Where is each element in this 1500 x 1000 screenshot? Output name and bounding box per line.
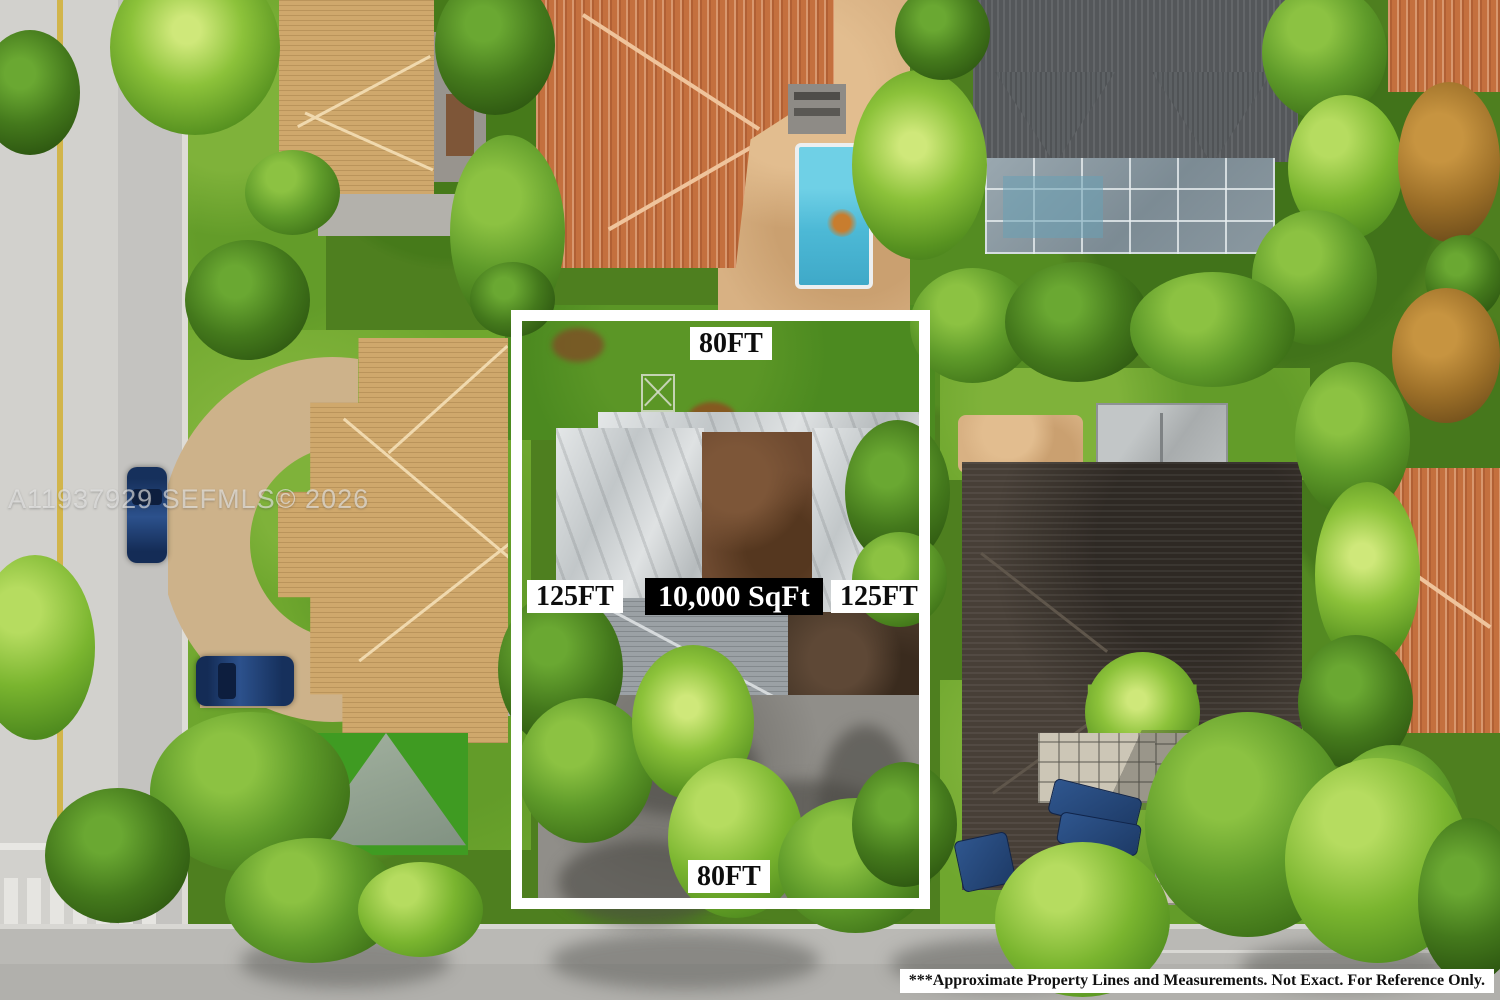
tree [45,788,190,923]
house-corner-roof [1388,0,1500,92]
boundary-label-bottom: 80FT [688,860,770,893]
boundary-label-right: 125FT [831,580,927,613]
entry-canopy [788,84,846,134]
autumn-tree [1392,288,1500,423]
crosswalk-stripe [4,878,18,926]
tree-shadow [550,932,820,990]
parked-car-driveway [196,656,294,706]
parked-car-street [127,467,167,563]
pool-screen-enclosure [985,158,1275,254]
canopy-slot [794,92,840,100]
boundary-label-top: 80FT [690,327,772,360]
tree [358,862,483,957]
palm-tree [852,70,987,260]
pool-plant [827,209,857,237]
car-windshield [218,663,236,699]
canopy-slot [794,108,840,116]
tree [1130,272,1295,387]
aerial-photo-stage: 80FT 80FT 125FT 125FT 10,000 SqFt A11937… [0,0,1500,1000]
boundary-label-left: 125FT [527,580,623,613]
enclosed-pool-water [1003,176,1103,238]
shrub [185,240,310,360]
roof-ridge [980,552,1108,653]
roof-ridge [388,345,509,454]
crosswalk-stripe [27,878,41,926]
lot-area-label: 10,000 SqFt [645,578,823,615]
disclaimer-banner: ***Approximate Property Lines and Measur… [900,969,1494,993]
roof-ridge [582,13,760,131]
mls-watermark: A11937929 SEFMLS© 2026 [8,484,369,515]
roof-ridge [358,537,517,662]
autumn-tree [1398,82,1500,242]
shrub [245,150,340,235]
tree [1005,262,1150,382]
